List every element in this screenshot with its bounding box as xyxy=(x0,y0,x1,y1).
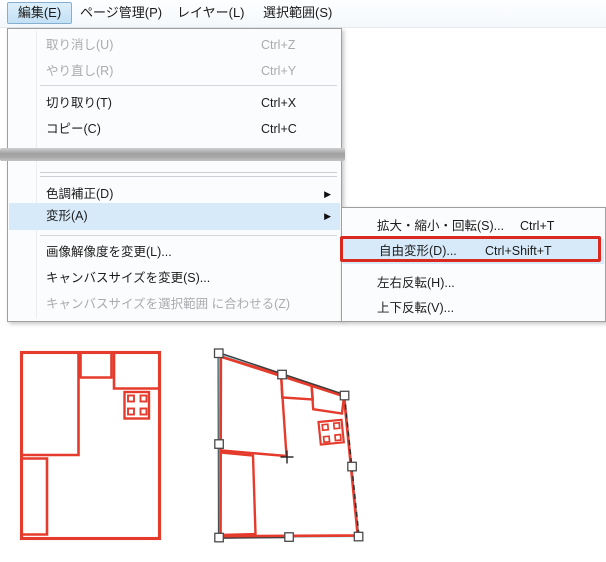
handle-bottom-right[interactable] xyxy=(354,532,363,541)
menu-item-label: 取り消し(U) xyxy=(46,32,113,58)
handle-top-left[interactable] xyxy=(215,349,224,358)
menu-item-label: 変形(A) xyxy=(46,203,88,230)
menu-item-label: やり直し(R) xyxy=(46,58,113,84)
menu-item-undo[interactable]: 取り消し(U) Ctrl+Z xyxy=(9,32,340,58)
floor-plan-transformed xyxy=(221,357,358,537)
transform-pivot-crosshair[interactable] xyxy=(281,451,294,464)
plan-room-bottom-left-skewed xyxy=(221,453,256,536)
menu-item-scale-rotate[interactable]: 拡大・縮小・回転(S)... Ctrl+T xyxy=(343,213,604,239)
handle-top-middle[interactable] xyxy=(278,370,287,379)
menu-item-label: 画像解像度を変更(L)... xyxy=(46,239,172,265)
menu-item-cut[interactable]: 切り取り(T) Ctrl+X xyxy=(9,90,340,116)
plan-room-top-middle xyxy=(81,354,112,378)
menu-item-change-canvas-size[interactable]: キャンバスサイズを変更(S)... xyxy=(9,265,340,291)
menu-item-fit-canvas-to-selection[interactable]: キャンバスサイズを選択範囲 に合わせる(Z) xyxy=(9,291,340,317)
plan-room-top-right xyxy=(114,354,159,389)
menu-item-shortcut: Ctrl+Shift+T xyxy=(485,239,552,264)
plan-table-corners-skewed xyxy=(322,423,341,442)
menu-item-label: 自由変形(D)... xyxy=(379,239,457,264)
handle-middle-left[interactable] xyxy=(215,440,224,449)
plan-room-large xyxy=(23,354,79,455)
menu-separator xyxy=(40,235,337,236)
menu-item-label: 左右反転(H)... xyxy=(377,270,455,296)
menu-item-label: コピー(C) xyxy=(46,116,101,142)
menu-item-transform[interactable]: 変形(A) ▶ xyxy=(9,203,340,230)
menu-item-shortcut: Ctrl+C xyxy=(261,116,297,142)
menu-item-shortcut: Ctrl+X xyxy=(261,90,296,116)
menu-item-shortcut: Ctrl+Z xyxy=(261,32,295,58)
transform-submenu: 拡大・縮小・回転(S)... Ctrl+T 自由変形(D)... Ctrl+Sh… xyxy=(341,207,606,322)
menu-item-copy[interactable]: コピー(C) Ctrl+C xyxy=(9,116,340,142)
submenu-arrow-icon: ▶ xyxy=(324,203,331,230)
menu-item-label: 切り取り(T) xyxy=(46,90,112,116)
handle-top-right[interactable] xyxy=(340,391,349,400)
menu-item-change-image-resolution[interactable]: 画像解像度を変更(L)... xyxy=(9,239,340,265)
menu-separator xyxy=(40,176,337,177)
transform-frame-outline xyxy=(218,353,359,539)
floor-plan-original xyxy=(22,353,160,539)
menu-item-redo[interactable]: やり直し(R) Ctrl+Y xyxy=(9,58,340,84)
menu-item-label: キャンバスサイズを選択範囲 に合わせる(Z) xyxy=(46,291,290,317)
handle-bottom-middle[interactable] xyxy=(285,533,294,542)
menu-separator xyxy=(40,172,337,173)
menu-item-label: キャンバスサイズを変更(S)... xyxy=(46,265,210,291)
menu-separator xyxy=(40,85,337,86)
edit-menu-dropdown: 取り消し(U) Ctrl+Z やり直し(R) Ctrl+Y 切り取り(T) Ct… xyxy=(7,28,342,322)
menu-item-label: 上下反転(V)... xyxy=(377,295,454,321)
handle-middle-right[interactable] xyxy=(348,462,357,471)
plan-table-corners xyxy=(128,396,147,415)
menu-item-free-transform[interactable]: 自由変形(D)... Ctrl+Shift+T xyxy=(343,239,604,264)
plan-outer-wall xyxy=(22,353,160,539)
frame-edge-bottom xyxy=(219,538,289,539)
menu-item-label: 拡大・縮小・回転(S)... xyxy=(377,213,504,239)
screenshot-splice-bar xyxy=(0,148,345,161)
plan-outer-wall-skewed xyxy=(221,357,358,537)
handle-bottom-left[interactable] xyxy=(215,533,224,542)
menu-item-shortcut: Ctrl+T xyxy=(520,213,554,239)
plan-room-bottom-left xyxy=(23,459,47,535)
transform-frame xyxy=(219,354,360,538)
menu-item-shortcut: Ctrl+Y xyxy=(261,58,296,84)
menu-item-flip-vertical[interactable]: 上下反転(V)... xyxy=(343,295,604,321)
menu-item-flip-horizontal[interactable]: 左右反転(H)... xyxy=(343,270,604,296)
